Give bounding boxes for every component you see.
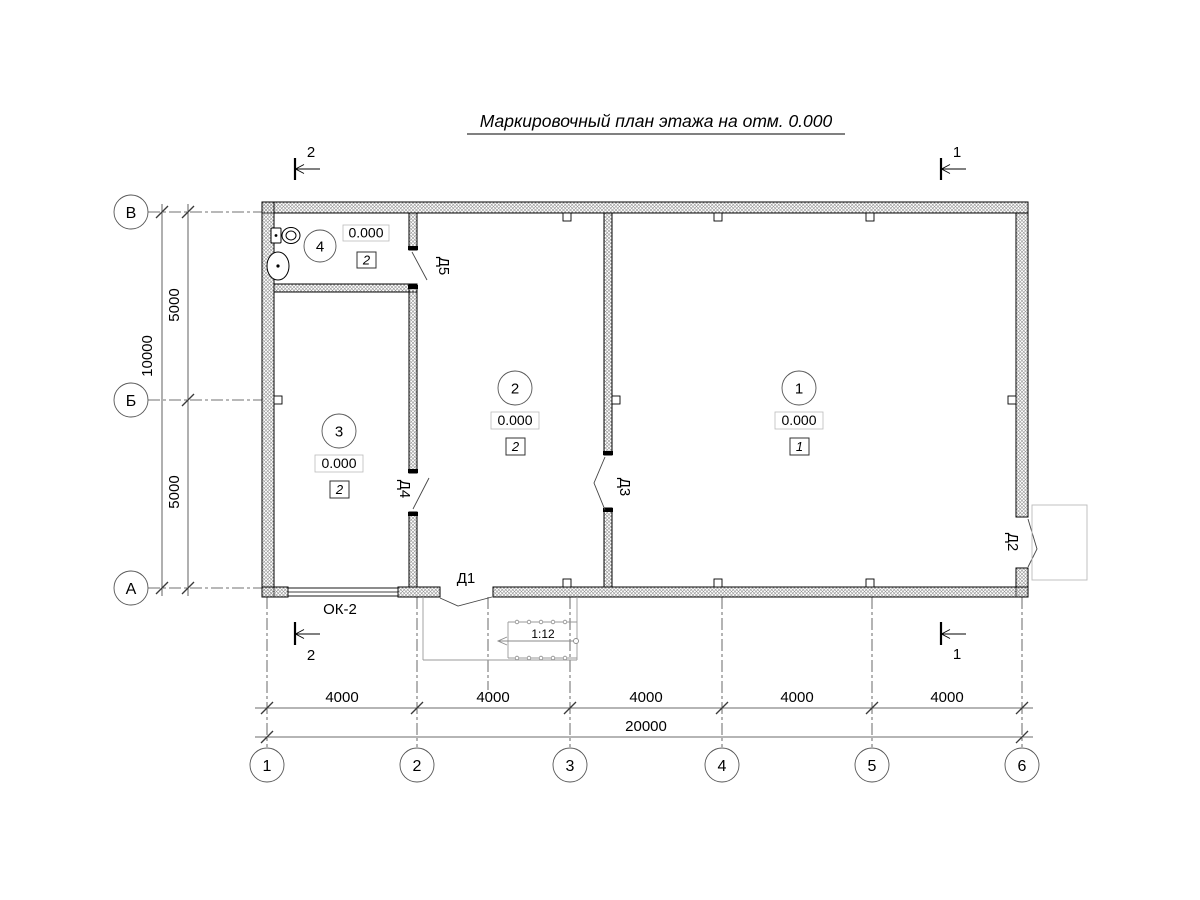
dim-bottom-seg-5: 4000 [930,689,963,706]
partition-axis2-upper [409,213,417,250]
door-d1-label: Д1 [457,570,476,587]
dim-bottom-seg-2: 4000 [476,689,509,706]
partition-room12-lower [604,508,612,587]
wall-top [262,202,1028,213]
room-2-number: 2 [511,381,519,398]
wall-pilasters [274,213,1016,587]
dim-bottom-seg-1: 4000 [325,689,358,706]
wall-bottom-c [493,587,1028,597]
wall-bottom-b [398,587,440,597]
toilet-icon [271,228,300,244]
section-marks: 2 1 2 1 [295,144,966,664]
axis-label-2: 2 [413,758,422,775]
door-d3-label: Д3 [616,478,633,497]
plan-title: Маркировочный план этажа на отм. 0.000 [467,111,845,134]
room-labels: 1 0.000 1 2 0.000 2 3 0.000 2 4 0.000 2 [304,225,823,499]
axis-label-4: 4 [718,758,727,775]
room-4-elevation: 0.000 [348,225,383,241]
room-4-number: 4 [316,239,324,256]
dim-left-total-label: 10000 [139,335,156,377]
ramp-slope-label: 1:12 [531,627,555,641]
dim-bottom-seg-3: 4000 [629,689,662,706]
wall-bottom-a [262,587,288,597]
axis-label-B: Б [126,393,137,410]
door-d3-leaf [594,457,605,510]
dim-left-seg-1: 5000 [166,288,183,321]
door-d4-label: Д4 [396,480,413,499]
door-d5-label: Д5 [435,257,452,276]
partition-wc-wall [274,284,417,292]
porch-ramp: 1:12 [423,597,579,660]
window-label: ОК-2 [323,601,357,618]
partition-axis2-middle [409,285,417,473]
room-3-floor-type: 2 [335,482,344,497]
section-mark-top-2: 2 [295,144,320,180]
section-mark-top-1: 1 [941,144,966,180]
exterior-walls [262,202,1028,597]
section-mark-bottom-1: 1 [941,622,966,663]
room-2-elevation: 0.000 [497,412,532,428]
door-d1-leaf [440,597,492,606]
axis-label-6: 6 [1018,758,1027,775]
wall-right-upper [1016,213,1028,517]
door-d2-label: Д2 [1004,533,1021,552]
room-1-number: 1 [795,381,803,398]
floor-plan-svg: Маркировочный план этажа на отм. 0.000 1… [0,0,1200,900]
room-3-number: 3 [335,424,343,441]
room-2-floor-type: 2 [511,439,520,454]
sanitary-fixtures [267,228,300,281]
room-1-elevation: 0.000 [781,412,816,428]
partition-room12-upper [604,213,612,455]
room-1-floor-type: 1 [796,439,803,454]
door-d5-leaf [412,252,427,280]
door-d2-leaf [1028,519,1037,567]
axis-bubbles: В Б А 1 2 3 4 5 6 [114,195,1039,782]
section-label-top-1: 1 [953,144,961,161]
axis-label-1: 1 [263,758,272,775]
dim-left-seg-2: 5000 [166,475,183,508]
room-4-floor-type: 2 [362,253,371,268]
axis-label-A: А [126,581,137,598]
exterior-landing [1032,505,1087,580]
section-label-bottom-1: 1 [953,646,961,663]
dimensions-bottom: 4000 4000 4000 4000 4000 20000 [255,689,1033,743]
axis-label-V: В [126,205,137,222]
landing-outline [1032,505,1087,580]
dim-bottom-seg-4: 4000 [780,689,813,706]
section-label-top-2: 2 [307,144,315,161]
dim-bottom-total-label: 20000 [625,718,667,735]
axis-label-3: 3 [566,758,575,775]
room-3-elevation: 0.000 [321,455,356,471]
sink-icon [267,252,289,280]
axis-label-5: 5 [868,758,877,775]
drawing-sheet: Маркировочный план этажа на отм. 0.000 1… [0,0,1200,900]
partition-axis2-lower [409,512,417,587]
section-label-bottom-2: 2 [307,647,315,664]
page-title: Маркировочный план этажа на отм. 0.000 [480,111,833,131]
window-ok2: ОК-2 [288,588,398,618]
door-d4-leaf [413,478,429,509]
section-mark-bottom-2: 2 [295,622,320,664]
